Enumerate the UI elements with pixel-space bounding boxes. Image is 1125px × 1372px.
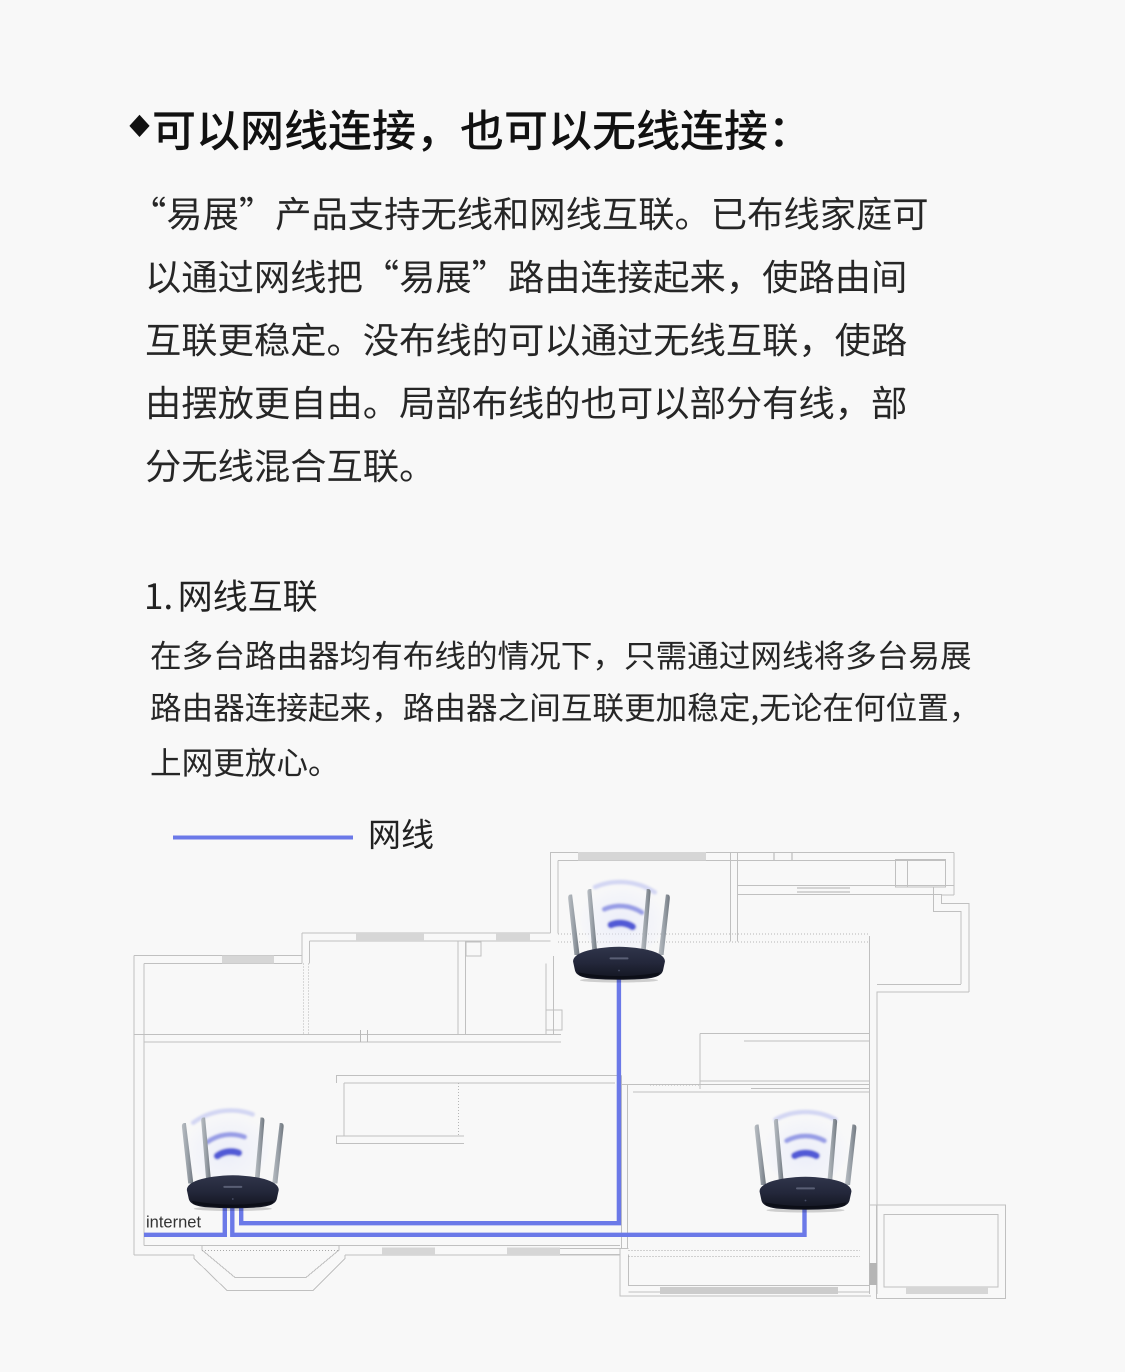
svg-text:internet: internet [146,1214,201,1232]
